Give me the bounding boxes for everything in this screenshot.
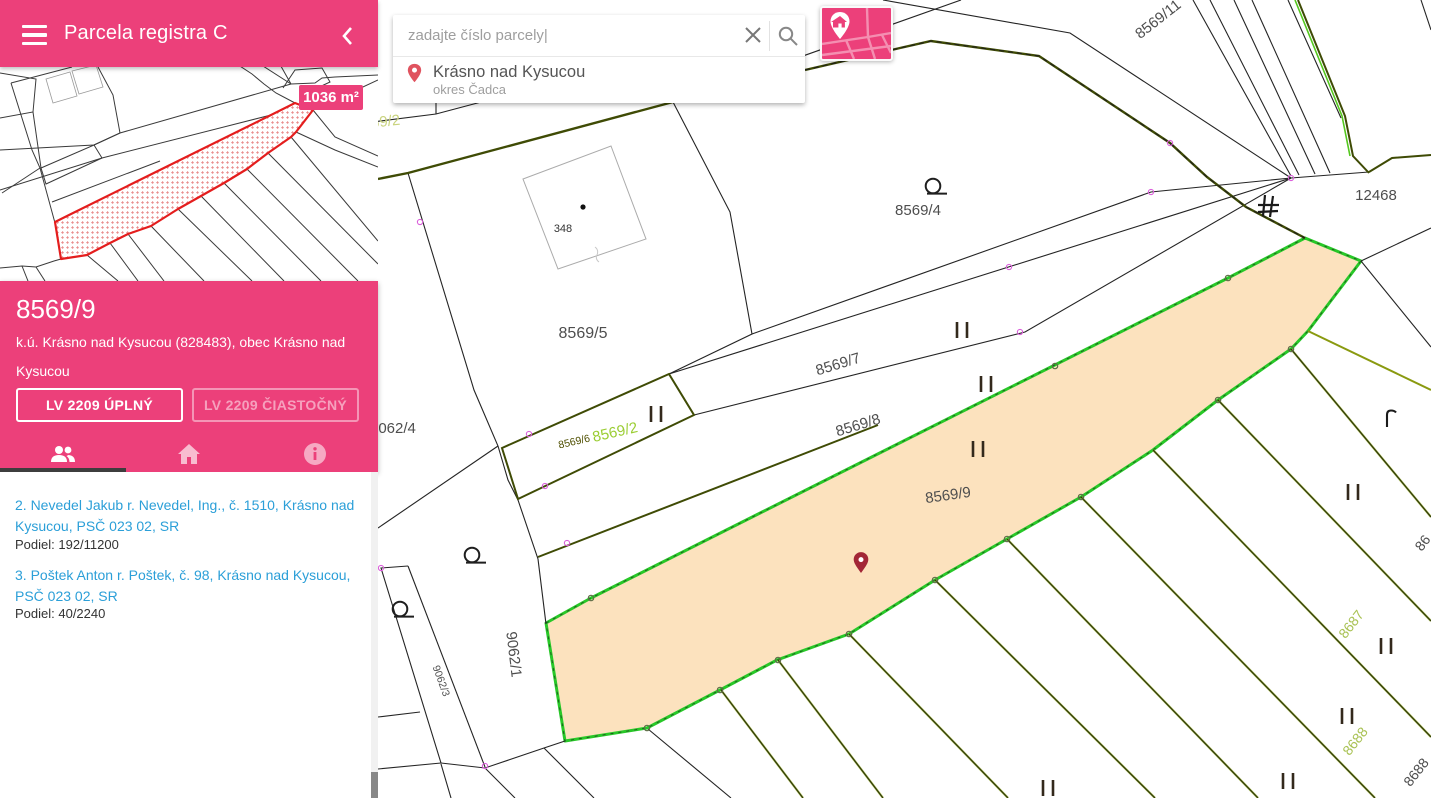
svg-text:69/2: 69/2: [378, 112, 401, 132]
svg-text:8569/6: 8569/6: [557, 432, 591, 451]
svg-text:8687: 8687: [1335, 607, 1367, 642]
svg-text:8688: 8688: [1339, 724, 1371, 759]
svg-text:86: 86: [1411, 532, 1431, 554]
svg-text:12468: 12468: [1355, 187, 1397, 204]
svg-text:8569/4: 8569/4: [895, 202, 941, 219]
svg-text:8569/5: 8569/5: [559, 325, 608, 342]
svg-text:9062/1: 9062/1: [502, 631, 524, 679]
svg-text:8569/8: 8569/8: [834, 411, 883, 441]
svg-text:8688: 8688: [1400, 755, 1431, 790]
svg-text:9062/3: 9062/3: [430, 664, 452, 698]
svg-text:9062/4: 9062/4: [378, 420, 416, 437]
svg-text:348: 348: [554, 223, 572, 235]
svg-text:8569/11: 8569/11: [1132, 0, 1184, 43]
svg-text:8569/2: 8569/2: [591, 419, 640, 446]
